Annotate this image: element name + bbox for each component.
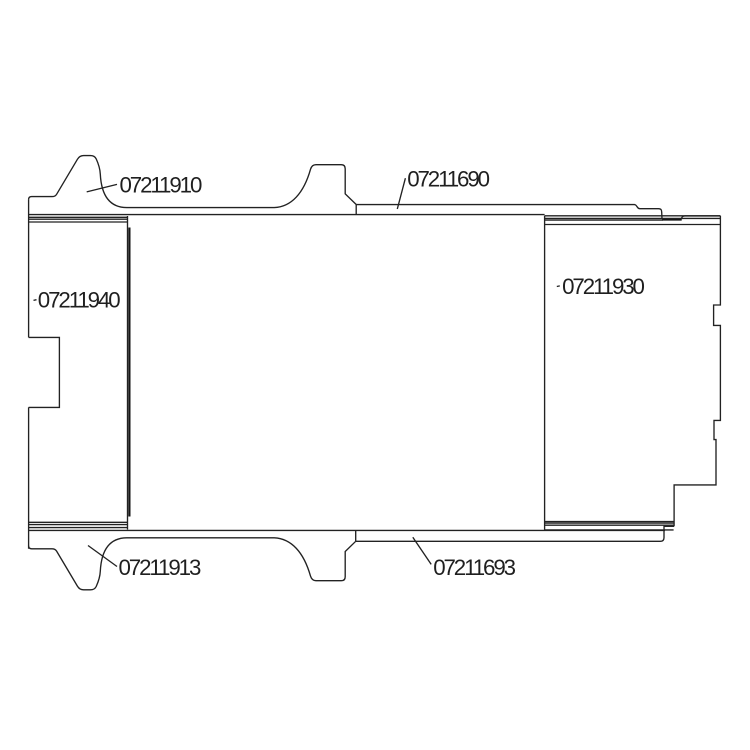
svg-text:07211913: 07211913 bbox=[119, 555, 201, 580]
svg-text:07211930: 07211930 bbox=[562, 274, 644, 299]
svg-text:07211910: 07211910 bbox=[120, 173, 202, 198]
svg-text:07211690: 07211690 bbox=[407, 166, 489, 191]
svg-text:07211940: 07211940 bbox=[38, 287, 120, 312]
svg-text:07211693: 07211693 bbox=[433, 555, 515, 580]
